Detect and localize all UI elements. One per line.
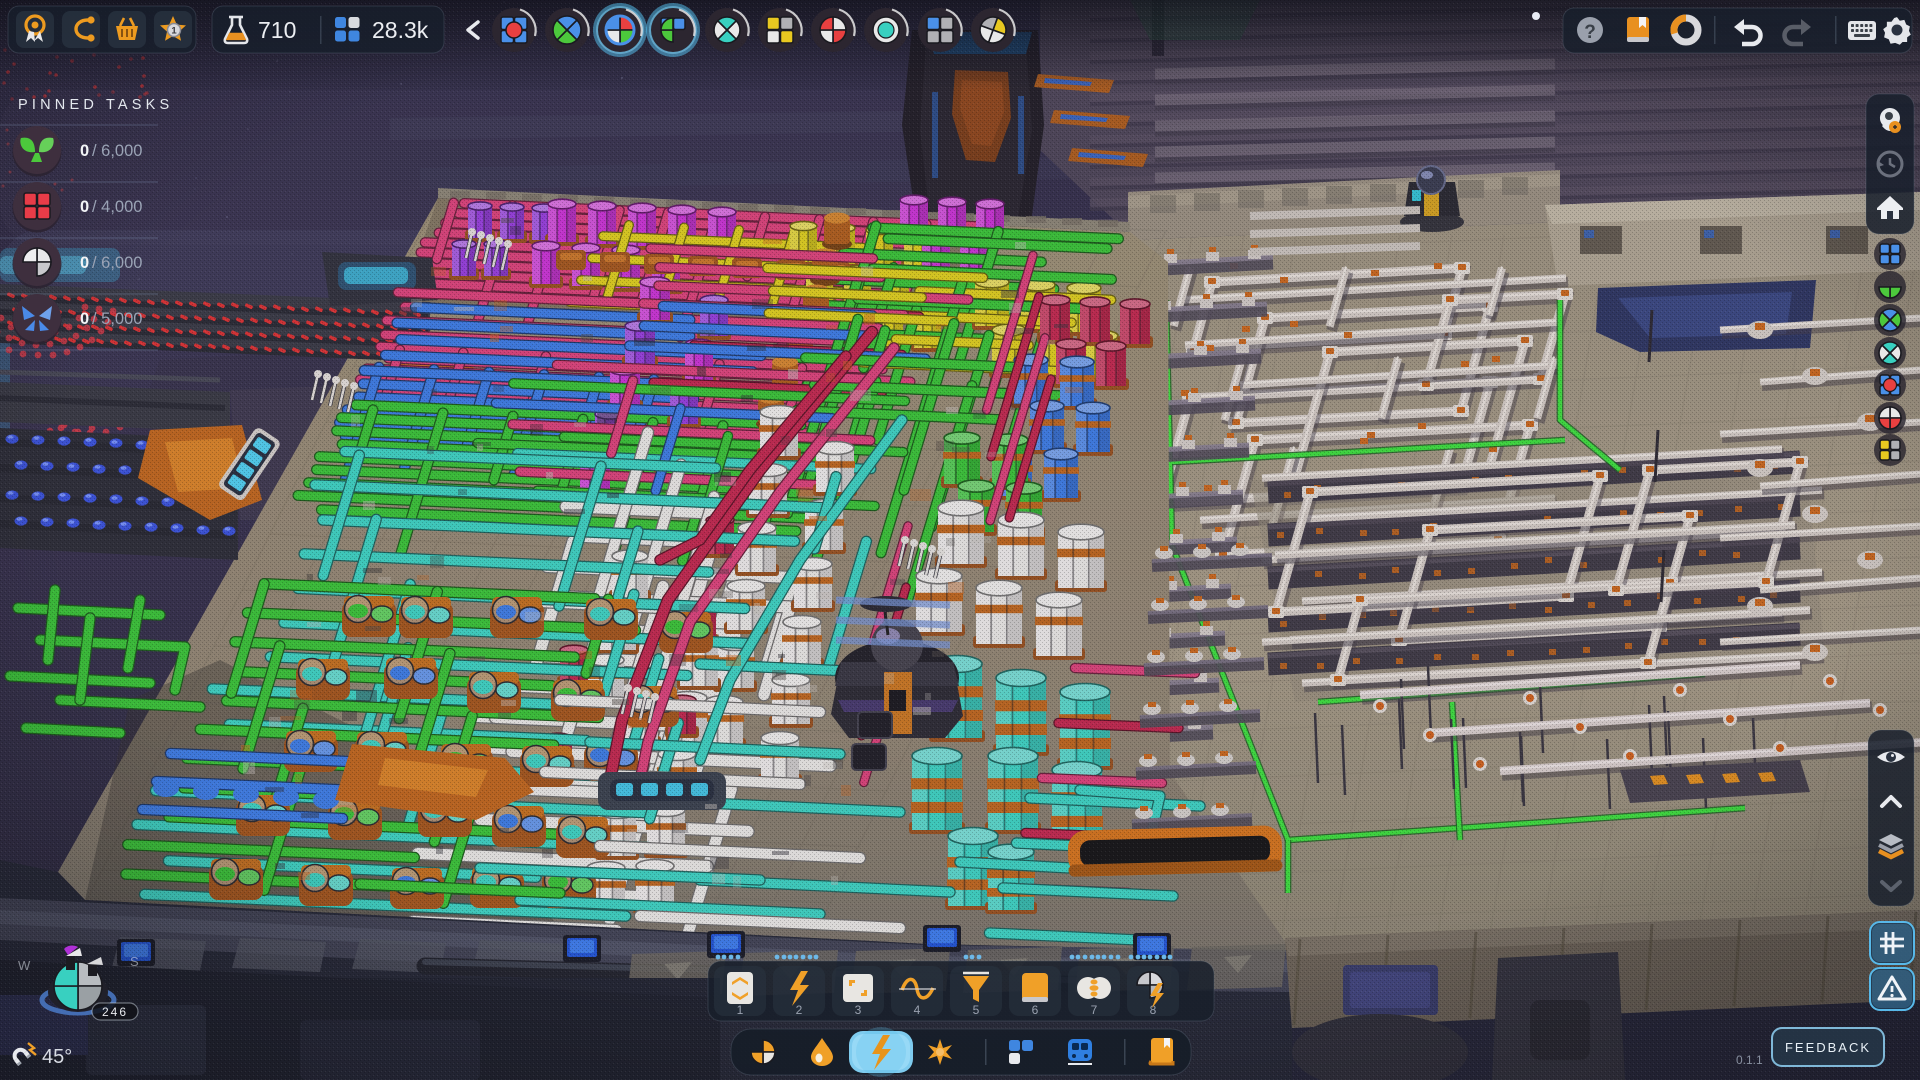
svg-text:0: 0 bbox=[80, 310, 89, 328]
svg-text:4: 4 bbox=[914, 1003, 921, 1017]
svg-text:W: W bbox=[18, 958, 31, 973]
svg-text:0: 0 bbox=[80, 142, 89, 160]
svg-text:1: 1 bbox=[171, 25, 177, 36]
svg-text:246: 246 bbox=[102, 1005, 128, 1019]
svg-text:0.1.1: 0.1.1 bbox=[1736, 1053, 1763, 1067]
svg-text:28.3k: 28.3k bbox=[372, 17, 429, 43]
svg-text:5: 5 bbox=[973, 1003, 980, 1017]
svg-text:/ 5,000: / 5,000 bbox=[92, 310, 142, 328]
svg-text:/ 6,000: / 6,000 bbox=[92, 254, 142, 272]
svg-text:S: S bbox=[130, 954, 139, 969]
svg-text:1: 1 bbox=[737, 1003, 744, 1017]
svg-text:0: 0 bbox=[80, 254, 89, 272]
svg-text:0: 0 bbox=[80, 198, 89, 216]
svg-text:7: 7 bbox=[1091, 1003, 1098, 1017]
svg-text:/ 6,000: / 6,000 bbox=[92, 142, 142, 160]
svg-text:?: ? bbox=[1584, 22, 1596, 43]
svg-text:45°: 45° bbox=[42, 1046, 72, 1068]
svg-text:FEEDBACK: FEEDBACK bbox=[1785, 1040, 1871, 1055]
svg-text:6: 6 bbox=[1032, 1003, 1039, 1017]
svg-text:3: 3 bbox=[855, 1003, 862, 1017]
svg-text:PINNED TASKS: PINNED TASKS bbox=[18, 97, 173, 113]
svg-text:2: 2 bbox=[796, 1003, 803, 1017]
svg-text:/ 4,000: / 4,000 bbox=[92, 198, 142, 216]
svg-text:710: 710 bbox=[258, 17, 296, 43]
